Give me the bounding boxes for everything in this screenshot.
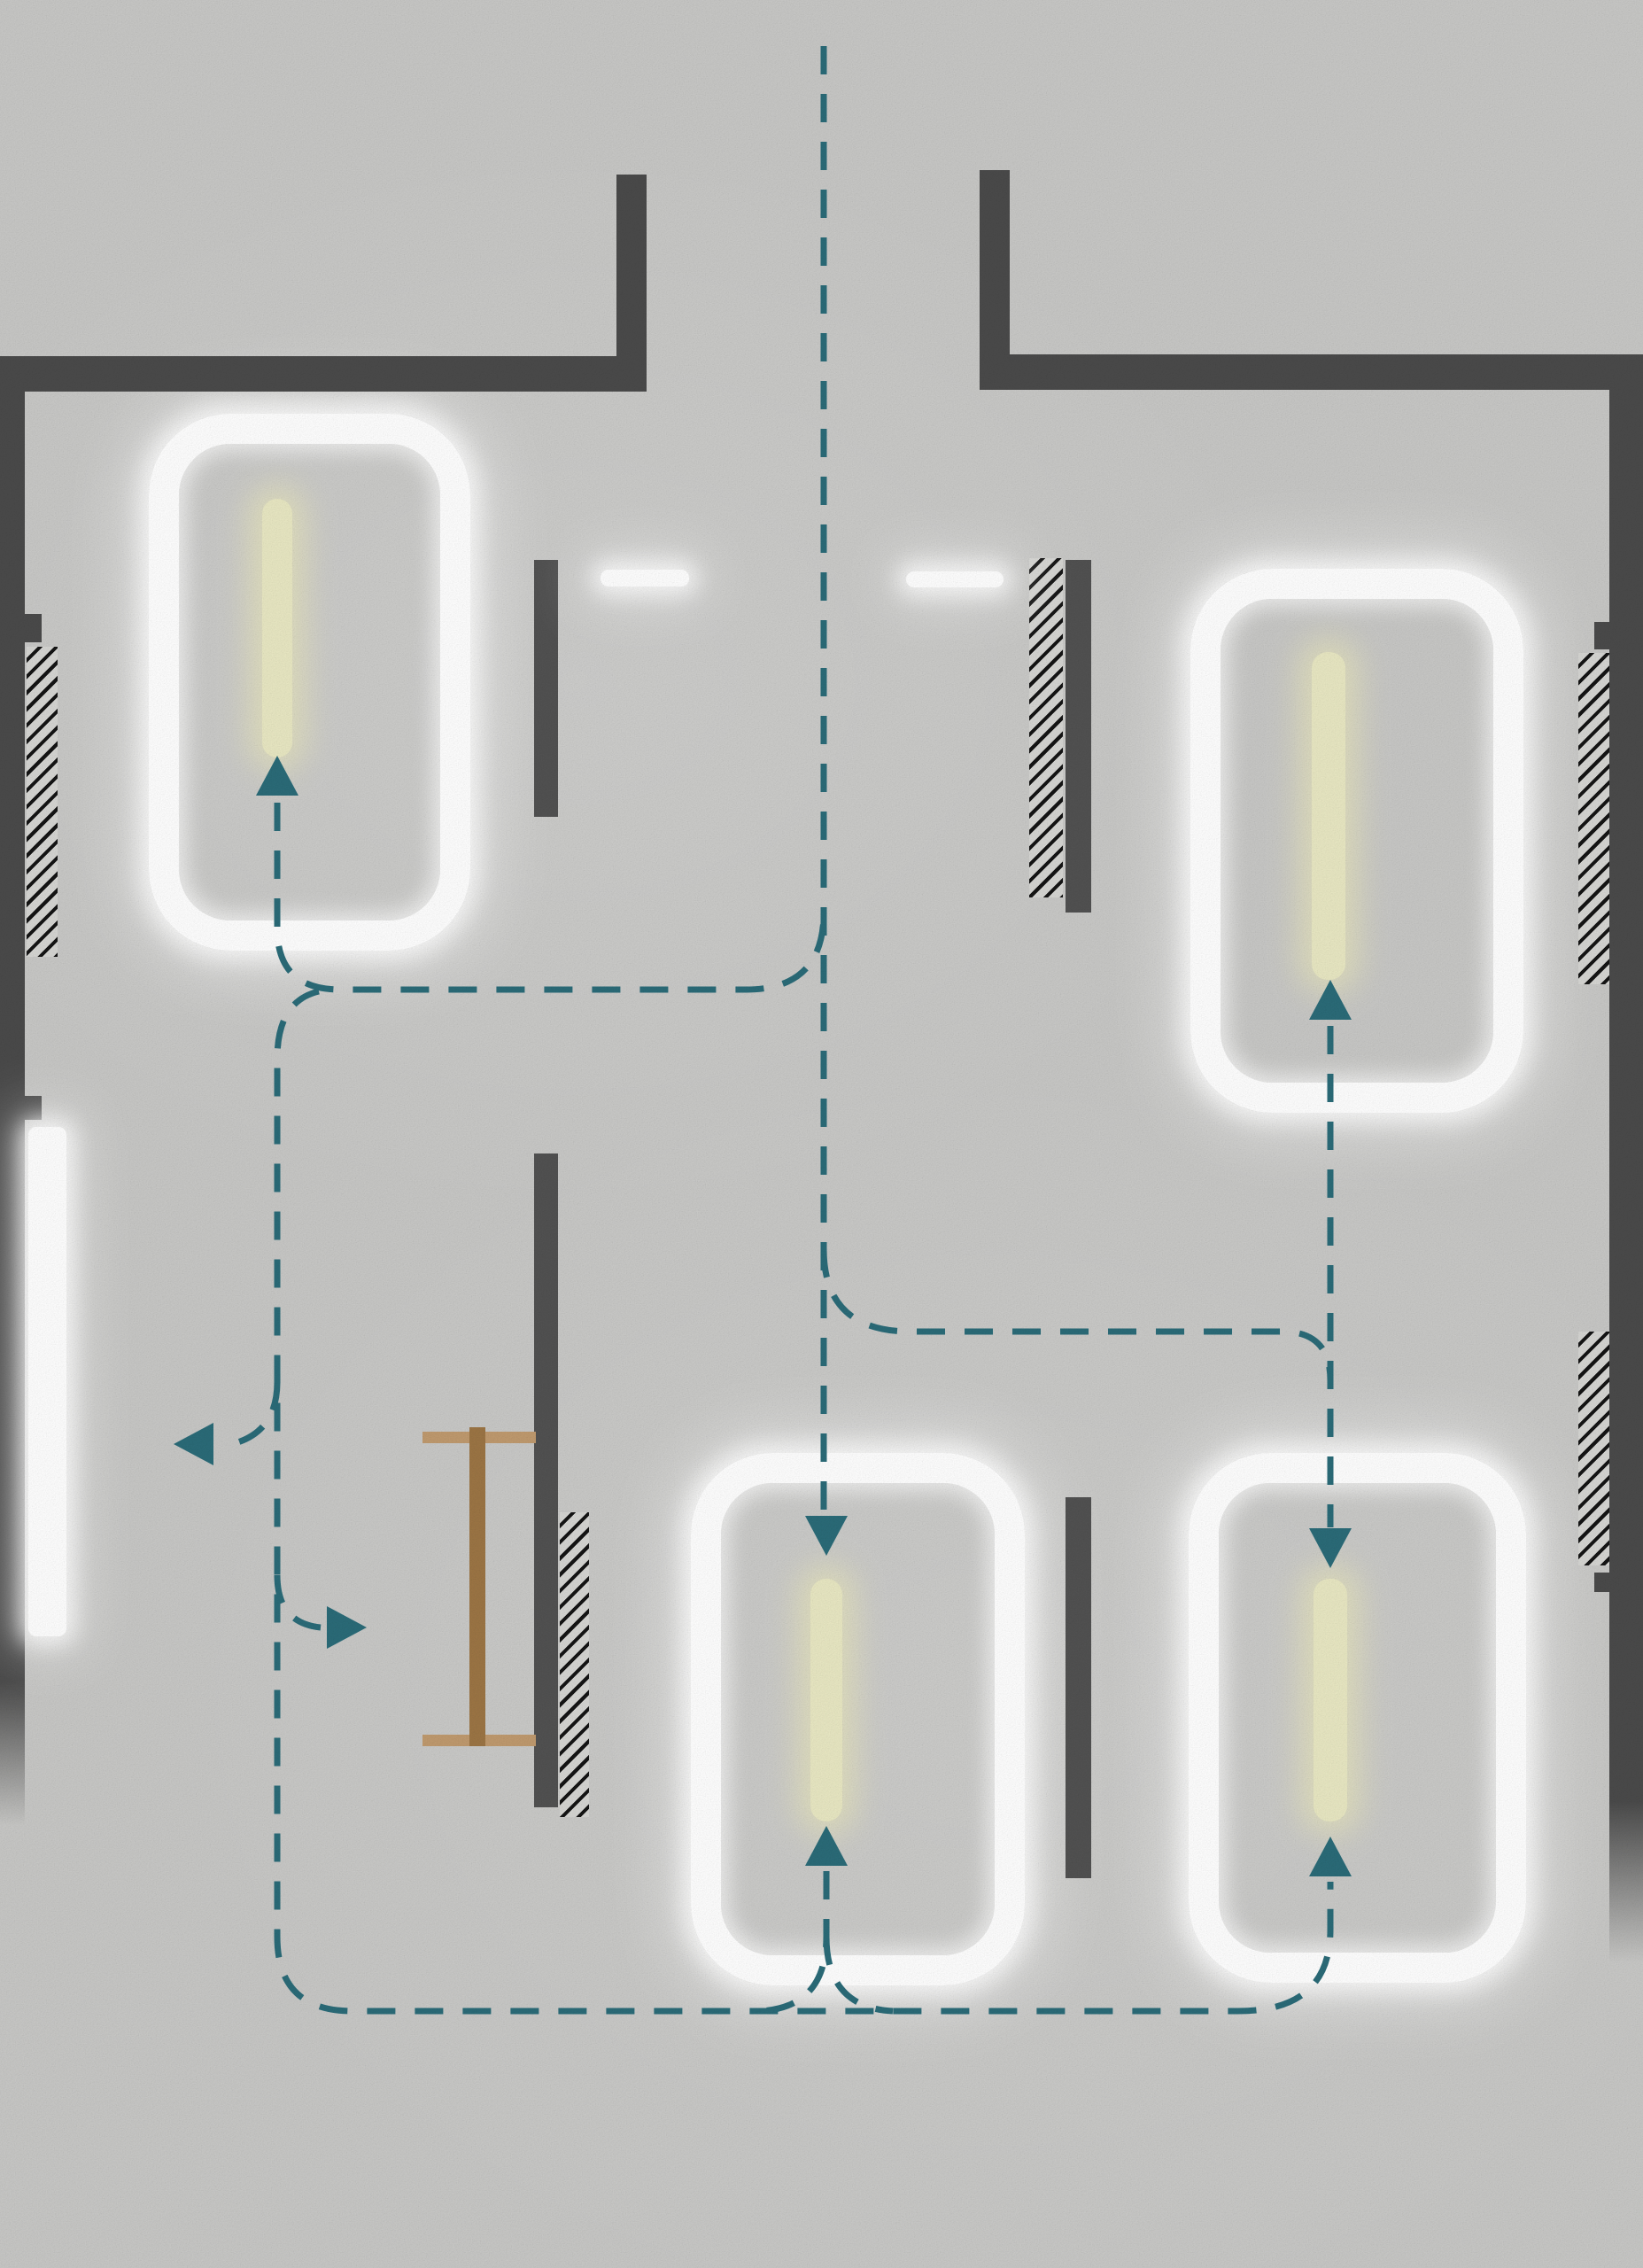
floor-plan	[0, 0, 1643, 2268]
exit-arrow-center	[327, 1606, 367, 1649]
exit-arrow-west	[174, 1423, 213, 1465]
stall-arrow-southeast-down	[1309, 1528, 1352, 1568]
route-bottom-mid-feed-east	[826, 1937, 893, 2011]
stall-arrow-southeast-up	[1309, 1837, 1352, 1876]
route-topleft-stall-link	[277, 803, 824, 990]
route-center-exit-link	[277, 1575, 321, 1627]
route-network	[0, 0, 1643, 2268]
route-bottom-mid-feed-west	[760, 1871, 826, 2011]
route-west-perimeter-loop	[277, 991, 1330, 2011]
stall-arrow-northwest-up	[256, 756, 298, 796]
stall-arrow-southmid-down	[805, 1516, 848, 1556]
stall-arrow-southmid-up	[805, 1826, 848, 1866]
route-east-branch	[824, 1249, 1330, 1380]
stall-arrow-northeast-up	[1309, 980, 1352, 1020]
route-west-exit-link	[223, 1382, 277, 1446]
